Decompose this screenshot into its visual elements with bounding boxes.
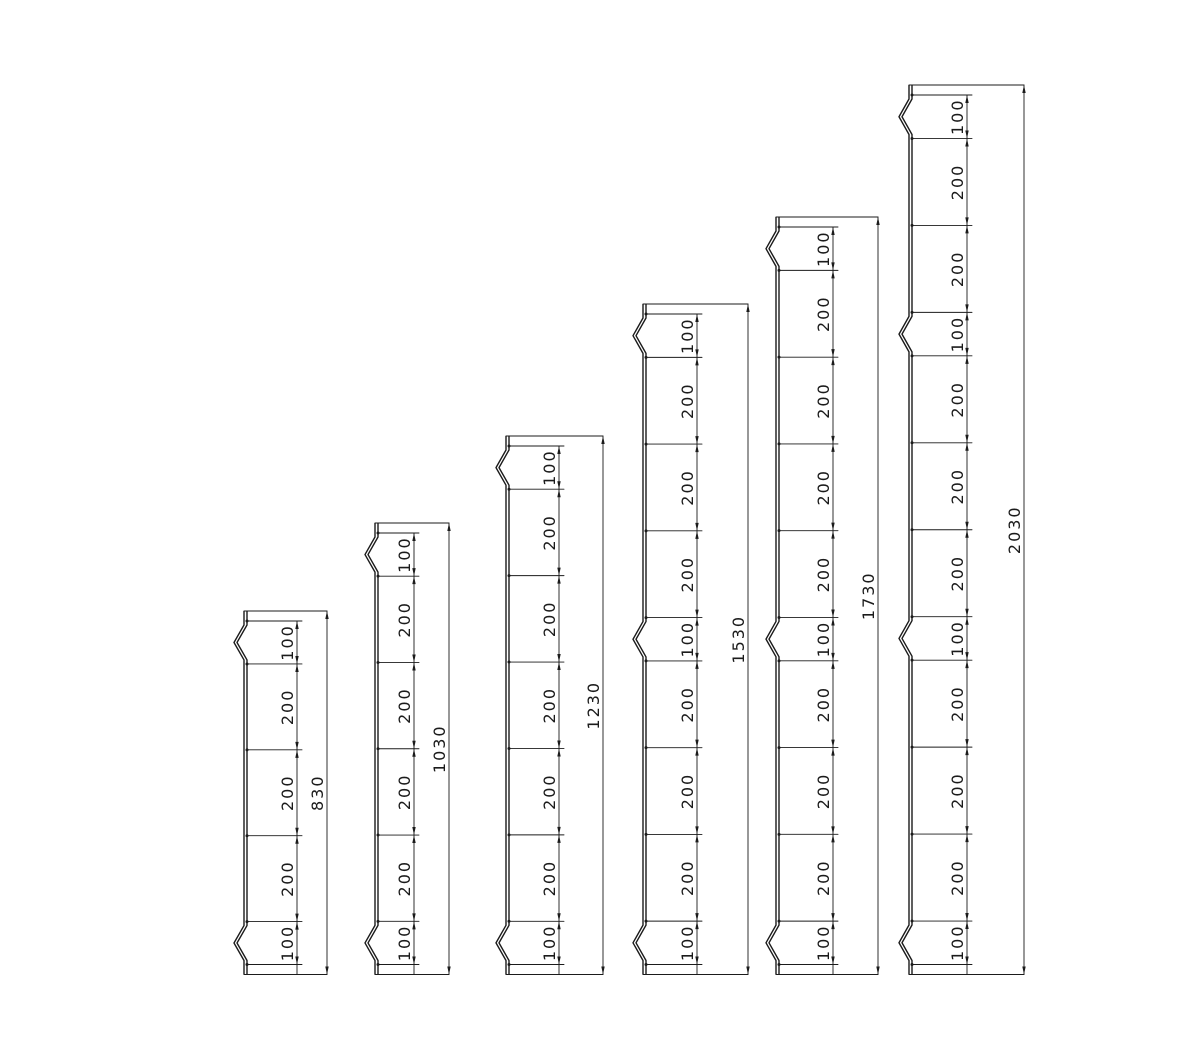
dimension-arrowhead bbox=[295, 750, 298, 758]
dimension-arrowhead bbox=[831, 609, 834, 617]
profile-outer-edge bbox=[365, 523, 375, 975]
dimension-arrowhead bbox=[831, 661, 834, 669]
junction-dot bbox=[778, 356, 781, 359]
segment-dimension-label: 100 bbox=[948, 316, 967, 353]
segment-dimension-label: 100 bbox=[678, 317, 697, 354]
dimension-arrowhead bbox=[601, 436, 604, 444]
technical-drawing-canvas: 1002002002001008301002002002002001001030… bbox=[0, 0, 1201, 1048]
junction-dot bbox=[778, 659, 781, 662]
total-dimension-label: 830 bbox=[308, 774, 327, 811]
segment-dimension-label: 200 bbox=[278, 774, 297, 811]
dimension-arrowhead bbox=[695, 357, 698, 365]
dimension-arrowhead bbox=[295, 828, 298, 836]
dimension-arrowhead bbox=[695, 913, 698, 921]
dimension-arrowhead bbox=[965, 826, 968, 834]
dimension-arrowhead bbox=[695, 740, 698, 748]
junction-dot bbox=[911, 441, 914, 444]
dimension-arrowhead bbox=[965, 913, 968, 921]
dimension-arrowhead bbox=[601, 967, 604, 975]
dimension-arrowhead bbox=[557, 913, 560, 921]
junction-dot bbox=[645, 963, 648, 966]
total-dimension-label: 1730 bbox=[859, 571, 878, 620]
junction-dot bbox=[377, 575, 380, 578]
junction-dot bbox=[645, 920, 648, 923]
profile-830: 100200200200100830 bbox=[234, 611, 329, 975]
junction-dot bbox=[778, 269, 781, 272]
dimension-arrowhead bbox=[695, 661, 698, 669]
segment-dimension-label: 100 bbox=[948, 98, 967, 135]
junction-dot bbox=[645, 356, 648, 359]
profile-outer-edge bbox=[234, 611, 244, 975]
segment-dimension-label: 200 bbox=[678, 556, 697, 593]
segment-dimension-label: 100 bbox=[814, 230, 833, 267]
dimension-arrowhead bbox=[965, 522, 968, 530]
junction-dot bbox=[508, 445, 511, 448]
segment-dimension-label: 200 bbox=[540, 773, 559, 810]
dimension-arrowhead bbox=[831, 523, 834, 531]
junction-dot bbox=[377, 963, 380, 966]
dimension-arrowhead bbox=[412, 576, 415, 584]
dimension-arrowhead bbox=[695, 531, 698, 539]
dimension-arrowhead bbox=[831, 531, 834, 539]
dimension-arrowhead bbox=[965, 530, 968, 538]
segment-dimension-label: 200 bbox=[814, 556, 833, 593]
dimension-arrowhead bbox=[557, 662, 560, 670]
dimension-arrowhead bbox=[965, 747, 968, 755]
segment-dimension-label: 100 bbox=[540, 449, 559, 486]
dimension-arrowhead bbox=[1022, 85, 1025, 93]
dimension-arrowhead bbox=[965, 660, 968, 668]
junction-dot bbox=[508, 488, 511, 491]
segment-dimension-label: 200 bbox=[678, 469, 697, 506]
dimension-arrowhead bbox=[695, 436, 698, 444]
junction-dot bbox=[377, 532, 380, 535]
dimension-arrowhead bbox=[447, 967, 450, 975]
dimension-arrowhead bbox=[557, 835, 560, 843]
dimension-arrowhead bbox=[412, 654, 415, 662]
segment-dimension-label: 200 bbox=[814, 859, 833, 896]
total-dimension-label: 1530 bbox=[729, 615, 748, 664]
junction-dot bbox=[246, 620, 249, 623]
segment-dimension-label: 200 bbox=[678, 773, 697, 810]
dimension-arrowhead bbox=[412, 835, 415, 843]
segment-dimension-label: 100 bbox=[948, 924, 967, 961]
junction-dot bbox=[246, 748, 249, 751]
junction-dot bbox=[778, 616, 781, 619]
segment-dimension-label: 200 bbox=[948, 772, 967, 809]
dimension-arrowhead bbox=[831, 436, 834, 444]
dimension-arrowhead bbox=[295, 836, 298, 844]
total-dimension-label: 1230 bbox=[584, 681, 603, 730]
segment-dimension-label: 100 bbox=[395, 925, 414, 962]
junction-dot bbox=[246, 963, 249, 966]
segment-dimension-label: 200 bbox=[948, 555, 967, 592]
segment-dimension-label: 200 bbox=[948, 859, 967, 896]
dimension-arrowhead bbox=[557, 740, 560, 748]
profile-outer-edge bbox=[766, 217, 776, 975]
dimension-arrowhead bbox=[295, 664, 298, 672]
junction-dot bbox=[911, 615, 914, 618]
junction-dot bbox=[778, 746, 781, 749]
dimension-arrowhead bbox=[965, 304, 968, 312]
junction-dot bbox=[645, 659, 648, 662]
junction-dot bbox=[645, 616, 648, 619]
dimension-arrowhead bbox=[831, 834, 834, 842]
junction-dot bbox=[508, 747, 511, 750]
profile-outer-edge bbox=[496, 436, 506, 975]
dimension-arrowhead bbox=[746, 304, 749, 312]
profile-1730: 1002002002002001002002002001001730 bbox=[766, 217, 880, 975]
junction-dot bbox=[508, 574, 511, 577]
segment-dimension-label: 200 bbox=[678, 382, 697, 419]
segment-dimension-label: 200 bbox=[948, 381, 967, 418]
segment-dimension-label: 200 bbox=[948, 251, 967, 288]
junction-dot bbox=[377, 747, 380, 750]
drawing-area: 1002002002001008301002002002002001001030… bbox=[0, 0, 1201, 1048]
dimension-arrowhead bbox=[965, 356, 968, 364]
junction-dot bbox=[911, 137, 914, 140]
junction-dot bbox=[645, 313, 648, 316]
junction-dot bbox=[246, 834, 249, 837]
segment-dimension-label: 200 bbox=[814, 773, 833, 810]
segment-dimension-label: 100 bbox=[678, 925, 697, 962]
dimension-arrowhead bbox=[965, 138, 968, 146]
dimension-arrowhead bbox=[965, 609, 968, 617]
total-dimension-label: 1030 bbox=[430, 724, 449, 773]
total-dimension-label: 2030 bbox=[1005, 505, 1024, 554]
profile-1230: 1002002002002002001001230 bbox=[496, 436, 605, 975]
dimension-arrowhead bbox=[557, 576, 560, 584]
dimension-arrowhead bbox=[695, 826, 698, 834]
junction-dot bbox=[645, 529, 648, 532]
dimension-arrowhead bbox=[295, 914, 298, 922]
junction-dot bbox=[645, 833, 648, 836]
junction-dot bbox=[778, 963, 781, 966]
segment-dimension-label: 100 bbox=[678, 621, 697, 658]
junction-dot bbox=[778, 833, 781, 836]
junction-dot bbox=[778, 226, 781, 229]
dimension-arrowhead bbox=[325, 611, 328, 619]
segment-dimension-label: 200 bbox=[278, 860, 297, 897]
dimension-arrowhead bbox=[831, 349, 834, 357]
junction-dot bbox=[911, 311, 914, 314]
dimension-arrowhead bbox=[876, 967, 879, 975]
profile-inner-edge bbox=[499, 436, 509, 975]
dimension-arrowhead bbox=[412, 662, 415, 670]
junction-dot bbox=[508, 963, 511, 966]
junction-dot bbox=[911, 224, 914, 227]
dimension-arrowhead bbox=[295, 742, 298, 750]
dimension-arrowhead bbox=[831, 357, 834, 365]
segment-dimension-label: 200 bbox=[395, 860, 414, 897]
dimension-arrowhead bbox=[965, 834, 968, 842]
junction-dot bbox=[778, 442, 781, 445]
junction-dot bbox=[377, 834, 380, 837]
dimension-arrowhead bbox=[965, 739, 968, 747]
dimension-arrowhead bbox=[412, 741, 415, 749]
segment-dimension-label: 200 bbox=[678, 859, 697, 896]
dimension-arrowhead bbox=[557, 748, 560, 756]
segment-dimension-label: 200 bbox=[540, 687, 559, 724]
junction-dot bbox=[508, 661, 511, 664]
profile-1530: 1002002002001002002002001001530 bbox=[633, 304, 750, 975]
junction-dot bbox=[778, 920, 781, 923]
profile-inner-edge bbox=[237, 611, 247, 975]
junction-dot bbox=[911, 354, 914, 357]
dimension-arrowhead bbox=[557, 654, 560, 662]
junction-dot bbox=[911, 528, 914, 531]
segment-dimension-label: 200 bbox=[948, 685, 967, 722]
segment-dimension-label: 200 bbox=[540, 601, 559, 638]
segment-dimension-label: 100 bbox=[540, 925, 559, 962]
segment-dimension-label: 200 bbox=[395, 774, 414, 811]
profile-outer-edge bbox=[633, 304, 643, 975]
dimension-arrowhead bbox=[325, 967, 328, 975]
segment-dimension-label: 100 bbox=[278, 925, 297, 962]
segment-dimension-label: 100 bbox=[395, 536, 414, 573]
segment-dimension-label: 200 bbox=[278, 689, 297, 726]
junction-dot bbox=[508, 920, 511, 923]
dimension-arrowhead bbox=[695, 610, 698, 618]
dimension-arrowhead bbox=[557, 489, 560, 497]
junction-dot bbox=[911, 963, 914, 966]
junction-dot bbox=[911, 659, 914, 662]
dimension-arrowhead bbox=[695, 523, 698, 531]
junction-dot bbox=[645, 746, 648, 749]
junction-dot bbox=[508, 833, 511, 836]
junction-dot bbox=[911, 920, 914, 923]
dimension-arrowhead bbox=[695, 444, 698, 452]
profile-2030: 1002002001002002002001002002002001002030 bbox=[899, 85, 1026, 975]
dimension-arrowhead bbox=[557, 827, 560, 835]
dimension-arrowhead bbox=[965, 217, 968, 225]
segment-dimension-label: 100 bbox=[814, 621, 833, 658]
dimension-arrowhead bbox=[831, 748, 834, 756]
segment-dimension-label: 200 bbox=[814, 469, 833, 506]
segment-dimension-label: 100 bbox=[278, 624, 297, 661]
segment-dimension-label: 200 bbox=[540, 514, 559, 551]
dimension-arrowhead bbox=[831, 740, 834, 748]
dimension-arrowhead bbox=[557, 568, 560, 576]
junction-dot bbox=[911, 94, 914, 97]
dimension-arrowhead bbox=[447, 523, 450, 531]
segment-dimension-label: 200 bbox=[948, 468, 967, 505]
dimension-arrowhead bbox=[1022, 967, 1025, 975]
dimension-arrowhead bbox=[831, 270, 834, 278]
segment-dimension-label: 100 bbox=[814, 925, 833, 962]
dimension-arrowhead bbox=[695, 834, 698, 842]
junction-dot bbox=[645, 443, 648, 446]
profile-1030: 1002002002002001001030 bbox=[365, 523, 451, 975]
segment-dimension-label: 200 bbox=[540, 860, 559, 897]
junction-dot bbox=[377, 920, 380, 923]
profile-inner-edge bbox=[769, 217, 779, 975]
dimension-arrowhead bbox=[746, 967, 749, 975]
segment-dimension-label: 200 bbox=[814, 295, 833, 332]
segment-dimension-label: 200 bbox=[814, 686, 833, 723]
dimension-arrowhead bbox=[965, 443, 968, 451]
segment-dimension-label: 200 bbox=[948, 164, 967, 201]
junction-dot bbox=[246, 920, 249, 923]
junction-dot bbox=[377, 661, 380, 664]
junction-dot bbox=[911, 833, 914, 836]
dimension-arrowhead bbox=[831, 826, 834, 834]
dimension-arrowhead bbox=[412, 827, 415, 835]
junction-dot bbox=[911, 746, 914, 749]
junction-dot bbox=[778, 529, 781, 532]
dimension-arrowhead bbox=[831, 913, 834, 921]
dimension-arrowhead bbox=[965, 435, 968, 443]
dimension-arrowhead bbox=[965, 225, 968, 233]
segment-dimension-label: 200 bbox=[395, 601, 414, 638]
junction-dot bbox=[246, 662, 249, 665]
dimension-arrowhead bbox=[876, 217, 879, 225]
segment-dimension-label: 200 bbox=[814, 382, 833, 419]
dimension-arrowhead bbox=[831, 444, 834, 452]
segment-dimension-label: 200 bbox=[395, 687, 414, 724]
segment-dimension-label: 100 bbox=[948, 620, 967, 657]
dimension-arrowhead bbox=[412, 749, 415, 757]
profile-outer-edge bbox=[899, 85, 909, 975]
dimension-arrowhead bbox=[695, 748, 698, 756]
dimension-arrowhead bbox=[412, 913, 415, 921]
profile-inner-edge bbox=[636, 304, 646, 975]
segment-dimension-label: 200 bbox=[678, 686, 697, 723]
